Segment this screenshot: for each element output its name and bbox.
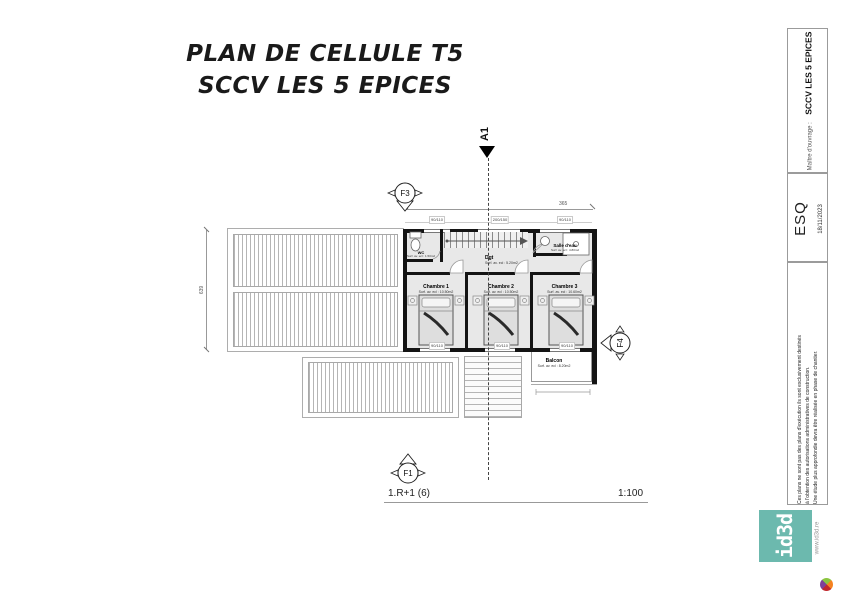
- section-marker-f1: F1: [390, 451, 426, 485]
- balcony-edge-line: [531, 384, 597, 385]
- page-title: PLAN DE CELLULE T5 SCCV LES 5 EPICES: [175, 38, 475, 102]
- issue-date: 18/11/2023: [818, 204, 824, 234]
- section-marker-f4: F4: [598, 325, 632, 361]
- svg-text:F4: F4: [616, 338, 625, 348]
- window-dim-bottom-3: 90/110: [559, 342, 575, 350]
- balcony-dimension: [536, 389, 590, 395]
- bed-icon-chambre-2: [473, 295, 529, 345]
- room-label-chambre-2: Chambre 2 Surf. av. ecl : 10.50m2: [471, 284, 531, 295]
- toilet-fixture: [410, 232, 421, 251]
- room-label-dgt: Dgt Surf. av. ecl : 5.20m2: [485, 255, 525, 266]
- plan-furniture-layer: [200, 120, 660, 500]
- plan-reference: 1.R+1 (6): [388, 488, 430, 499]
- section-marker-f3: F3: [387, 181, 423, 213]
- room-label-chambre-3: Chambre 3 Surf. av. ecl : 10.60m2: [536, 284, 593, 295]
- titleblock-client-box: Maître d'ouvrage : SCCV LES 5 EPICES: [787, 28, 828, 173]
- window-dim-bottom-1: 90/110: [429, 342, 445, 350]
- title-line-2: SCCV LES 5 EPICES: [175, 70, 475, 102]
- logo-text: id3d: [773, 514, 797, 558]
- balcony-wall-right: [592, 352, 597, 385]
- window-dim-bottom-2: 90/110: [494, 342, 510, 350]
- footer-rule: [384, 502, 648, 503]
- room-label-salle-deau: Salle d'eau Surf. av. ecl : 4.80m2: [540, 243, 590, 252]
- client-name: SCCV LES 5 EPICES: [804, 31, 814, 114]
- svg-text:F1: F1: [403, 469, 413, 478]
- disclaimer-text: Ces plans ne sont pas des plans d'exécut…: [796, 264, 820, 504]
- disclaimer-line-1: Ces plans ne sont pas des plans d'exécut…: [796, 264, 804, 504]
- client-text: Maître d'ouvrage : SCCV LES 5 EPICES: [799, 31, 817, 170]
- titleblock-disclaimer-box: Ces plans ne sont pas des plans d'exécut…: [787, 262, 828, 505]
- website-label: www.id3d.re: [812, 511, 823, 565]
- client-label: Maître d'ouvrage :: [808, 122, 814, 170]
- drawing-sheet: PLAN DE CELLULE T5 SCCV LES 5 EPICES Maî…: [0, 0, 849, 600]
- disclaimer-line-3: Une étude plus approfondie devra être ré…: [812, 264, 820, 504]
- bed-icon-chambre-1: [408, 295, 464, 345]
- room-label-chambre-1: Chambre 1 Surf. av. ecl : 10.50m2: [406, 284, 466, 295]
- bed-icon-chambre-3: [538, 295, 594, 345]
- room-label-balcon: Balcon Surf. av. ecl : 8.20m2: [533, 358, 575, 369]
- company-logo: id3d: [759, 510, 812, 562]
- disclaimer-line-2: à l'obtention des autorisations administ…: [804, 264, 812, 504]
- title-line-1: PLAN DE CELLULE T5: [175, 38, 475, 70]
- titleblock-phase-box: ESQ 18/11/2023: [787, 173, 828, 262]
- svg-text:F3: F3: [400, 189, 410, 198]
- stairs-arrow: [446, 237, 529, 245]
- plan-scale: 1:100: [618, 488, 643, 499]
- room-label-wc: WC Surf. av. ecl : 1.50m2: [404, 250, 438, 259]
- section-arrow-a1: [479, 146, 495, 158]
- phase-code: ESQ: [792, 201, 809, 236]
- section-line-a1: [488, 158, 489, 480]
- footer-ball-icon: [820, 578, 833, 591]
- section-marker-a1: A1: [473, 122, 497, 146]
